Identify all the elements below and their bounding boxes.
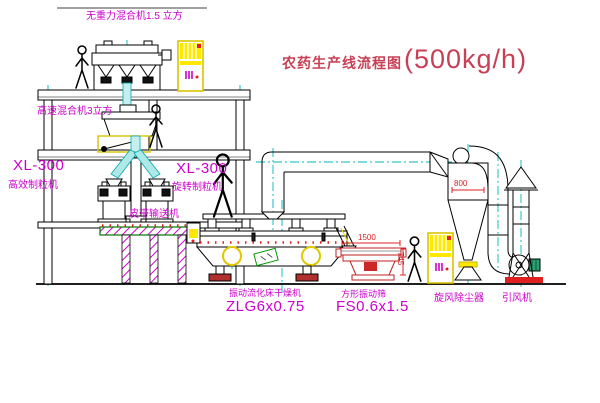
- label-belt-conveyor: 皮带输送机: [129, 210, 179, 221]
- mixer-discharge-pipe: [131, 136, 140, 152]
- fluid-bed-dryer: [187, 214, 347, 281]
- drawing-title: 农药生产线流程图 (500kg/h): [282, 44, 527, 75]
- dimension-screen-length: 1500: [358, 234, 376, 242]
- dimension-cyclone-diameter: 800: [454, 180, 467, 188]
- title-text: 农药生产线流程图: [282, 53, 402, 73]
- label-granulator-right-name: 旋转制粒机: [172, 183, 222, 194]
- person-ground: [408, 237, 421, 281]
- label-granulator-right-model: XL-300: [176, 161, 227, 176]
- label-fan: 引风机: [502, 294, 532, 305]
- person-roof: [76, 46, 88, 88]
- cyclone-separator: [448, 148, 488, 280]
- label-screen-model: FS0.6x1.5: [336, 299, 409, 314]
- gravity-free-mixer: [92, 41, 171, 90]
- support-column: [131, 158, 141, 216]
- dimension-screen-height: 745: [396, 252, 404, 265]
- belt-conveyor: [100, 226, 200, 284]
- title-capacity: (500kg/h): [404, 44, 527, 75]
- label-dryer-model: ZLG6x0.75: [226, 299, 305, 314]
- label-high-speed-mixer: 高速混合机3立方: [37, 107, 113, 118]
- label-granulator-left-name: 高效制粒机: [8, 181, 58, 192]
- label-granulator-left-model: XL-300: [13, 158, 64, 173]
- label-gravity-mixer: 无重力混合机1.5 立方: [86, 12, 183, 23]
- label-cyclone: 旋风除尘器: [434, 294, 484, 305]
- granulator-left: [98, 179, 130, 222]
- control-cabinet-2: [428, 233, 453, 283]
- cad-drawing-canvas: 农药生产线流程图 (500kg/h) 无重力混合机1.5 立方 高速混合机3立方…: [0, 0, 600, 403]
- control-cabinet-1: [178, 41, 203, 91]
